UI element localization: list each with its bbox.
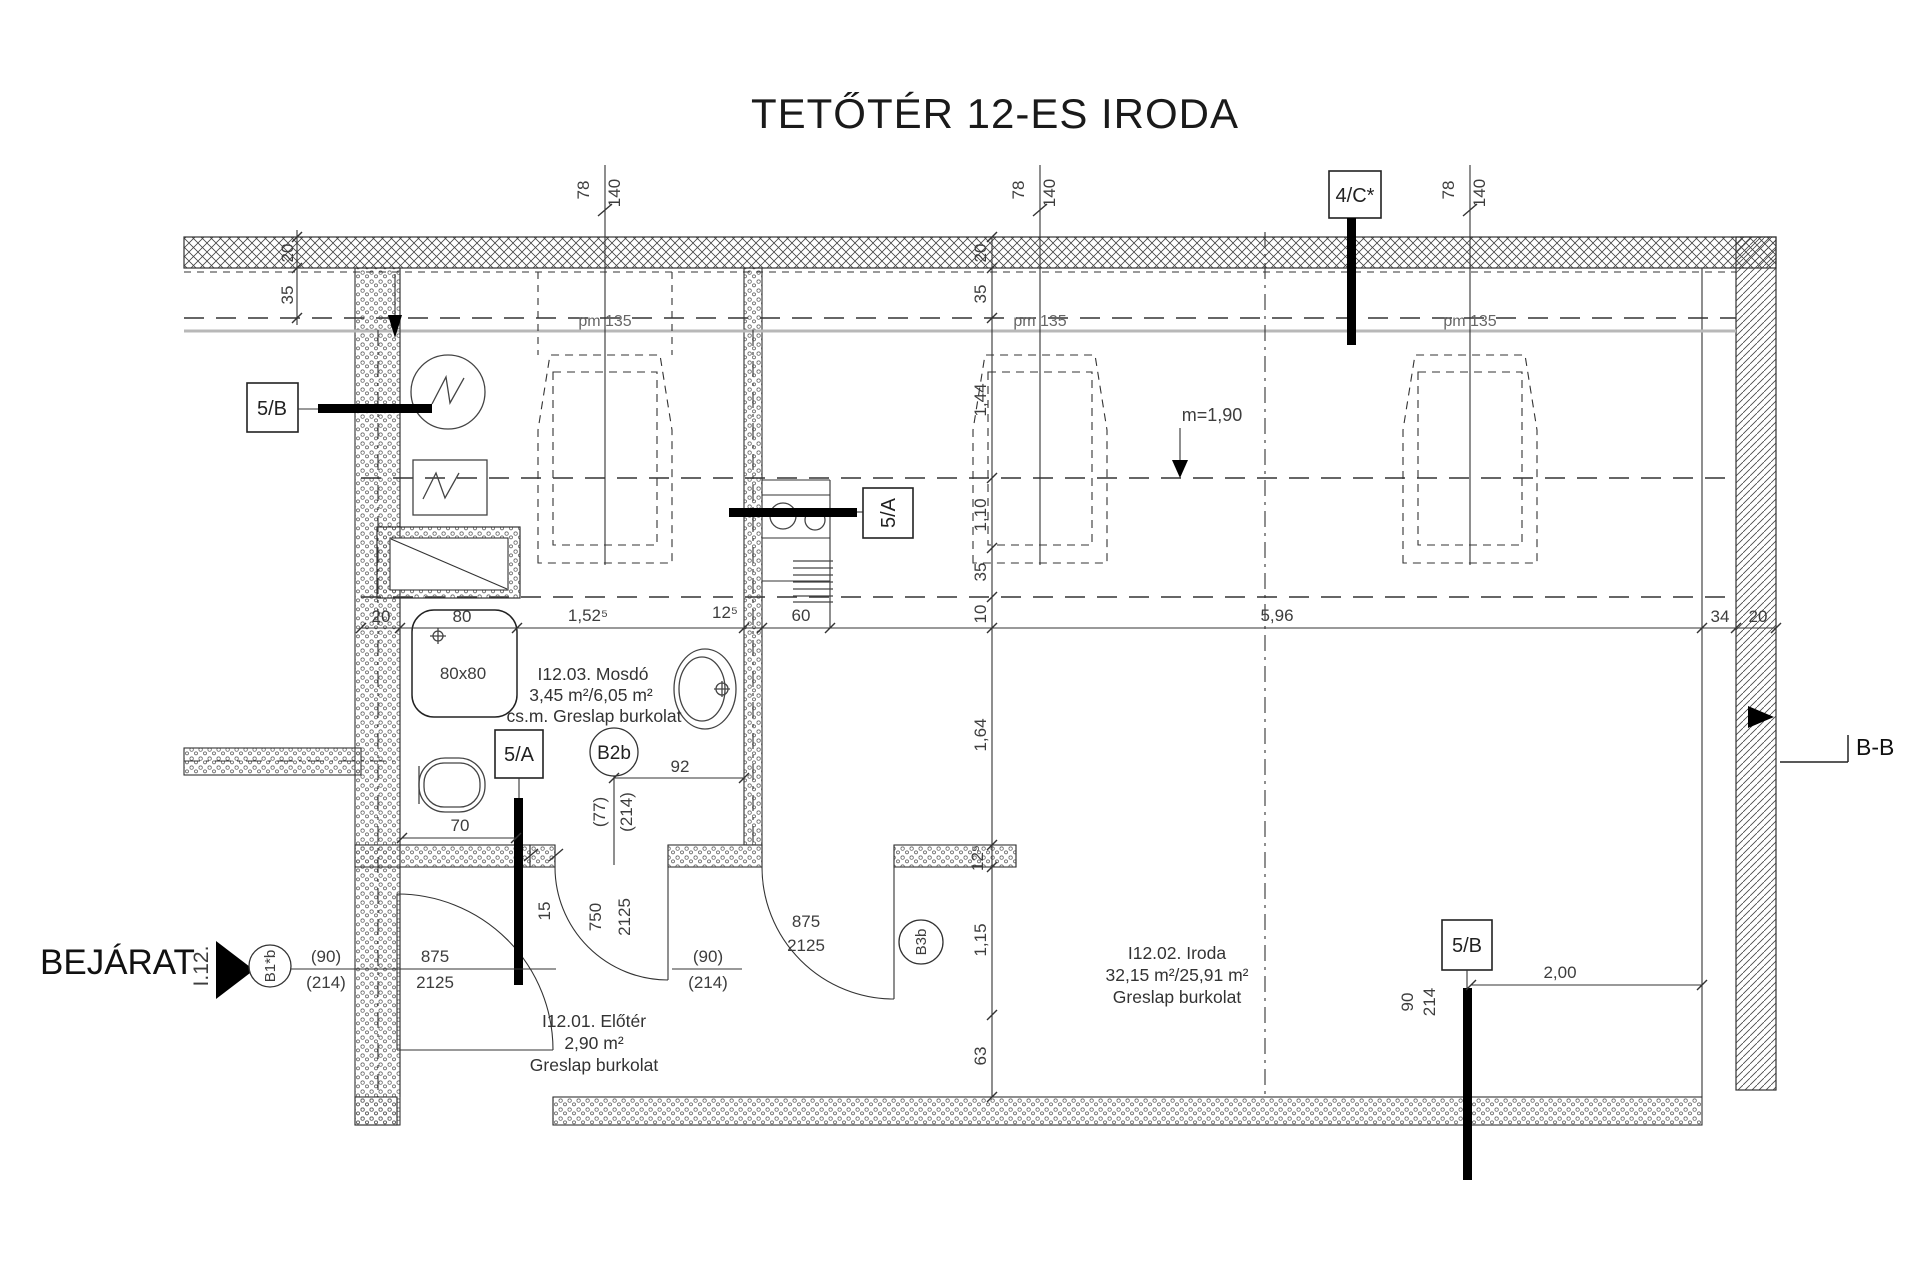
- vdim-1-10: 1,10: [971, 498, 990, 531]
- wc-leaf-height: 2125: [615, 898, 634, 936]
- section-label-5b: 5/B: [257, 398, 287, 420]
- roof-windows: 78 140 pm 135 78 140 pm 135 78 140 pm 13…: [538, 165, 1537, 565]
- room-label-mosdo: I12.03. Mosdó 3,45 m²/6,05 m² cs.m. Gres…: [506, 664, 681, 726]
- section-marker-5b-bottom: 5/B: [1442, 920, 1492, 1180]
- window-dim-width: 78: [1009, 181, 1028, 200]
- mid-wall-c: [894, 845, 1016, 867]
- section-marker-5b-top: 5/B: [247, 383, 432, 432]
- section-label-5a: 5/A: [878, 497, 900, 528]
- door-mark-b3b: B3b: [913, 929, 930, 956]
- niche-height: (214): [617, 792, 636, 832]
- entrance-label: BEJÁRAT: [40, 943, 195, 982]
- height-annotation: m=1,90: [1172, 405, 1242, 478]
- section-label-5b: 5/B: [1452, 935, 1482, 957]
- section-markers: 5/B 5/A 5/A 5/B 4/C*: [247, 171, 1894, 1180]
- b3b-leaf-width: 875: [792, 912, 820, 931]
- right-window-dim: 2,00 90 214: [1398, 963, 1707, 1016]
- drawing-title: TETŐTÉR 12-ES IRODA: [751, 90, 1239, 137]
- eloter-name: I12.01. Előtér: [542, 1011, 646, 1031]
- shower-size-label: 80x80: [440, 664, 486, 683]
- niche-width: (77): [590, 797, 609, 827]
- dim-20b: 20: [1749, 607, 1768, 626]
- dim-20: 20: [372, 607, 391, 626]
- dim-34: 34: [1711, 607, 1730, 626]
- height-label: m=1,90: [1182, 405, 1243, 425]
- b3b-opening-width: (90): [693, 947, 723, 966]
- pier-dim: 15: [535, 902, 554, 921]
- office-door: [762, 867, 894, 999]
- roof-window-2: 78 140 pm 135: [973, 165, 1107, 565]
- dim-90: 90: [1398, 993, 1417, 1012]
- roof-window-3: 78 140 pm 135: [1403, 165, 1537, 565]
- left-dim-20: 20: [278, 244, 297, 263]
- height-arrow: [1172, 460, 1188, 478]
- mosdo-floor: cs.m. Greslap burkolat: [506, 706, 681, 726]
- window-dim-height: 140: [1470, 179, 1489, 207]
- mid-wall-a: [355, 845, 530, 867]
- bathroom-door: [555, 867, 668, 980]
- window-dim-height: 140: [1040, 179, 1059, 207]
- room-label-eloter: I12.01. Előtér 2,90 m² Greslap burkolat: [530, 1011, 659, 1075]
- dim-60: 60: [792, 606, 811, 625]
- vdim-63: 63: [971, 1047, 990, 1066]
- entrance-door: [397, 894, 553, 1050]
- section-label-4c: 4/C*: [1336, 185, 1375, 207]
- vdim-1-44: 1,44: [971, 383, 990, 416]
- left-dim-35: 35: [278, 286, 297, 305]
- vdim-35b: 35: [971, 563, 990, 582]
- left-stub-wall: [184, 748, 361, 775]
- radiator-symbol: [413, 460, 487, 515]
- dim-1-52: 1,52⁵: [568, 606, 608, 625]
- radiator-zigzag: [423, 473, 459, 499]
- room-labels: I12.03. Mosdó 3,45 m²/6,05 m² cs.m. Gres…: [506, 664, 1248, 1075]
- mosdo-name: I12.03. Mosdó: [538, 664, 649, 684]
- vdim-20: 20: [971, 244, 990, 263]
- sink-offset-dim: 92: [671, 757, 690, 776]
- bottom-wall-right: [553, 1097, 1702, 1125]
- water-heater-zigzag: [432, 377, 464, 404]
- window-dim-width: 78: [1439, 181, 1458, 200]
- iroda-area: 32,15 m²/25,91 m²: [1106, 965, 1249, 985]
- vdim-35: 35: [971, 285, 990, 304]
- iroda-name: I12.02. Iroda: [1128, 943, 1227, 963]
- entry-opening-height: (214): [306, 973, 346, 992]
- eloter-floor: Greslap burkolat: [530, 1055, 659, 1075]
- toilet-width-dim: 70: [451, 816, 470, 835]
- mosdo-area: 3,45 m²/6,05 m²: [529, 685, 653, 705]
- bottom-wall-left: [355, 1097, 397, 1125]
- b3b-opening-height: (214): [688, 973, 728, 992]
- roof-window-1: 78 140 pm 135: [538, 165, 672, 565]
- floor-plan: TETŐTÉR 12-ES IRODA: [0, 0, 1920, 1269]
- vdim-12-5: 12⁵: [968, 845, 987, 871]
- washing-machine: [377, 527, 520, 598]
- window-dim-height: 140: [605, 179, 624, 207]
- vertical-dim-chain: 20 35 1,44 1,10 35 10 1,64 12⁵ 1,15 63: [968, 232, 997, 1102]
- dim-2-00: 2,00: [1543, 963, 1576, 982]
- roof-lines: [184, 232, 1736, 1100]
- parapet-label-1: pm 135: [578, 313, 631, 330]
- parapet-label-2: pm 135: [1013, 313, 1066, 330]
- entry-leaf-width: 875: [421, 947, 449, 966]
- door-mark-b1b: B1*b: [262, 950, 279, 983]
- shower-tray: 80x80: [412, 610, 517, 717]
- dim-12-5: 12⁵: [712, 603, 738, 622]
- washbasin: [674, 649, 736, 729]
- horizontal-dim-chain: 20 80 1,52⁵ 12⁵ 60 5,96 34 20: [356, 603, 1781, 633]
- office-door-annotation: (90) (214) 875 2125 B3b: [672, 912, 943, 992]
- entrance-axis-label: I.12.: [190, 946, 213, 987]
- mid-wall-b: [668, 845, 762, 867]
- door-mark-b2b: B2b: [597, 743, 631, 764]
- b3b-leaf-height: 2125: [787, 936, 825, 955]
- room-label-iroda: I12.02. Iroda 32,15 m²/25,91 m² Greslap …: [1106, 943, 1249, 1007]
- entrance-arrow: [216, 941, 254, 999]
- eloter-area: 2,90 m²: [564, 1033, 623, 1053]
- dim-80: 80: [453, 607, 472, 626]
- wc-leaf-width: 750: [586, 903, 605, 931]
- mid-wall-pier: [530, 845, 555, 867]
- section-label-bb: B-B: [1856, 734, 1894, 760]
- vdim-1-15: 1,15: [971, 923, 990, 956]
- vdim-10: 10: [971, 605, 990, 624]
- drainer-grill: [793, 561, 833, 602]
- entry-leaf-height: 2125: [416, 973, 454, 992]
- toilet: [419, 758, 485, 812]
- section-label-5a: 5/A: [504, 744, 535, 766]
- entrance-annotation: BEJÁRAT I.12. B1*b (90) (214) 875 2125: [40, 941, 556, 999]
- right-wall: [1736, 237, 1776, 1090]
- entry-opening-width: (90): [311, 947, 341, 966]
- iroda-floor: Greslap burkolat: [1113, 987, 1242, 1007]
- parapet-label-3: pm 135: [1443, 313, 1496, 330]
- dim-214: 214: [1420, 988, 1439, 1016]
- vdim-1-64: 1,64: [971, 718, 990, 751]
- window-dim-width: 78: [574, 181, 593, 200]
- dim-5-96: 5,96: [1260, 606, 1293, 625]
- toilet-dim: 70: [397, 816, 521, 843]
